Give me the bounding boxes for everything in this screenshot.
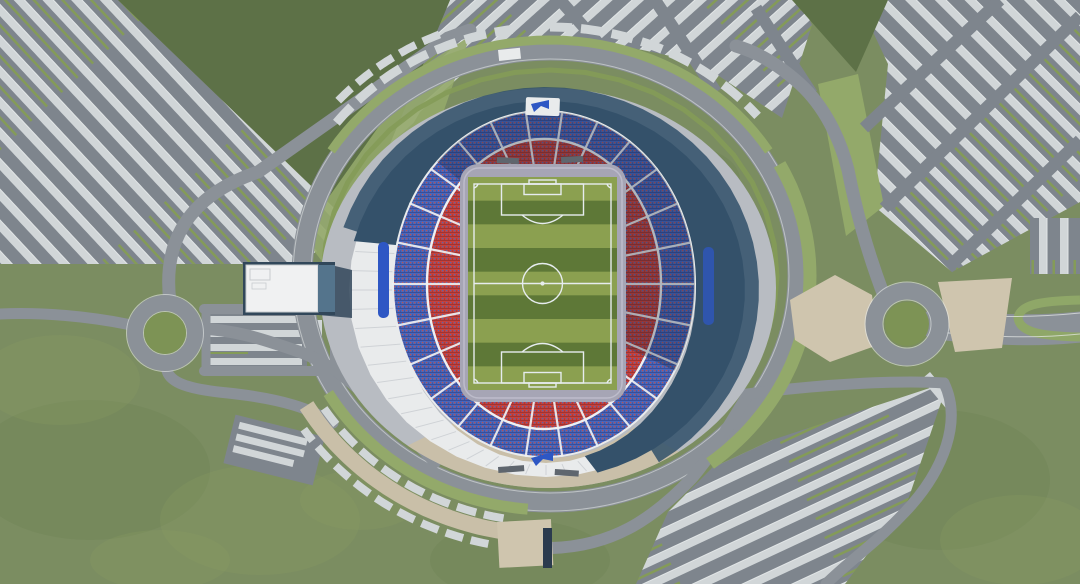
aerial-render-stage: [0, 0, 1080, 584]
stadium-aerial-render: [0, 0, 1080, 584]
service-building: [243, 262, 352, 318]
